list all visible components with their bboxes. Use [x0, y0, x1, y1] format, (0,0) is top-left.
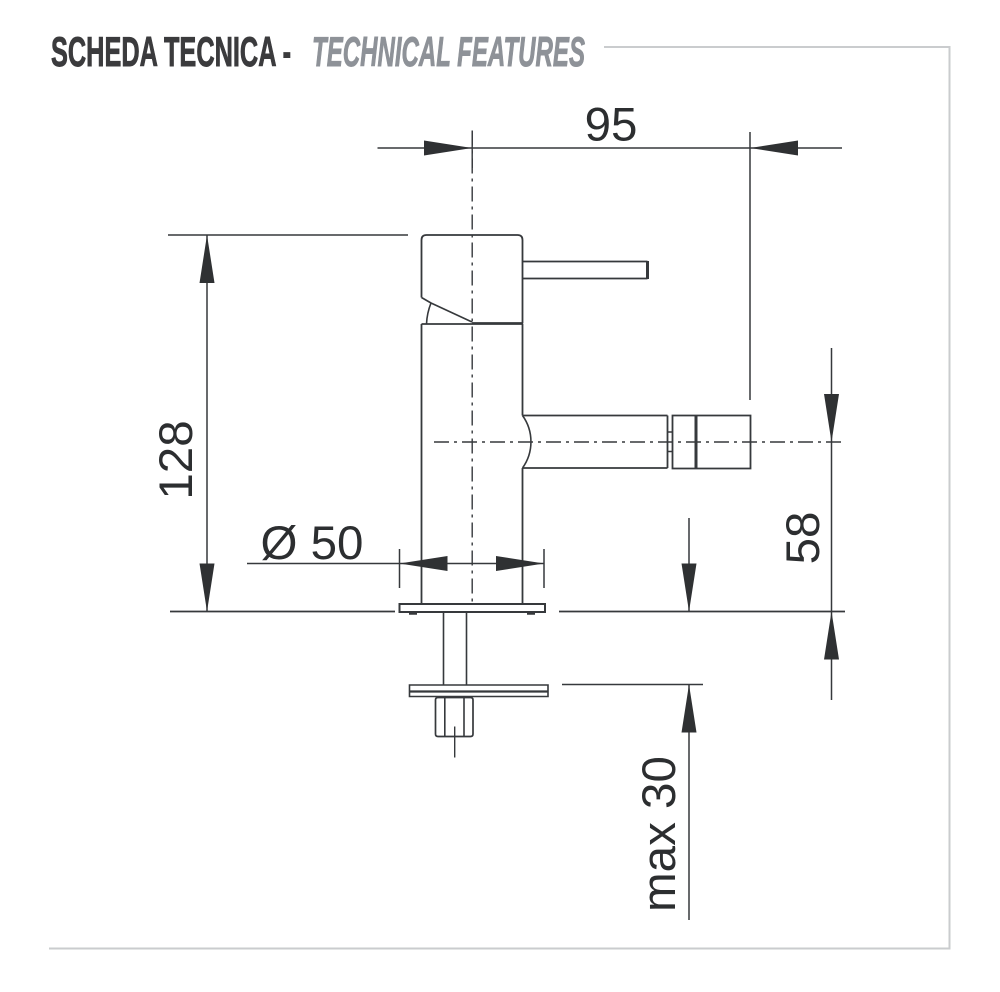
svg-text:58: 58 [777, 512, 830, 565]
svg-text:SCHEDA TECNICA -: SCHEDA TECNICA - [51, 28, 291, 75]
svg-text:128: 128 [150, 420, 203, 499]
svg-text:max 30: max 30 [633, 756, 686, 912]
svg-text:TECHNICAL FEATURES: TECHNICAL FEATURES [312, 28, 585, 75]
svg-text:95: 95 [585, 99, 638, 152]
svg-text:Ø 50: Ø 50 [261, 517, 364, 570]
